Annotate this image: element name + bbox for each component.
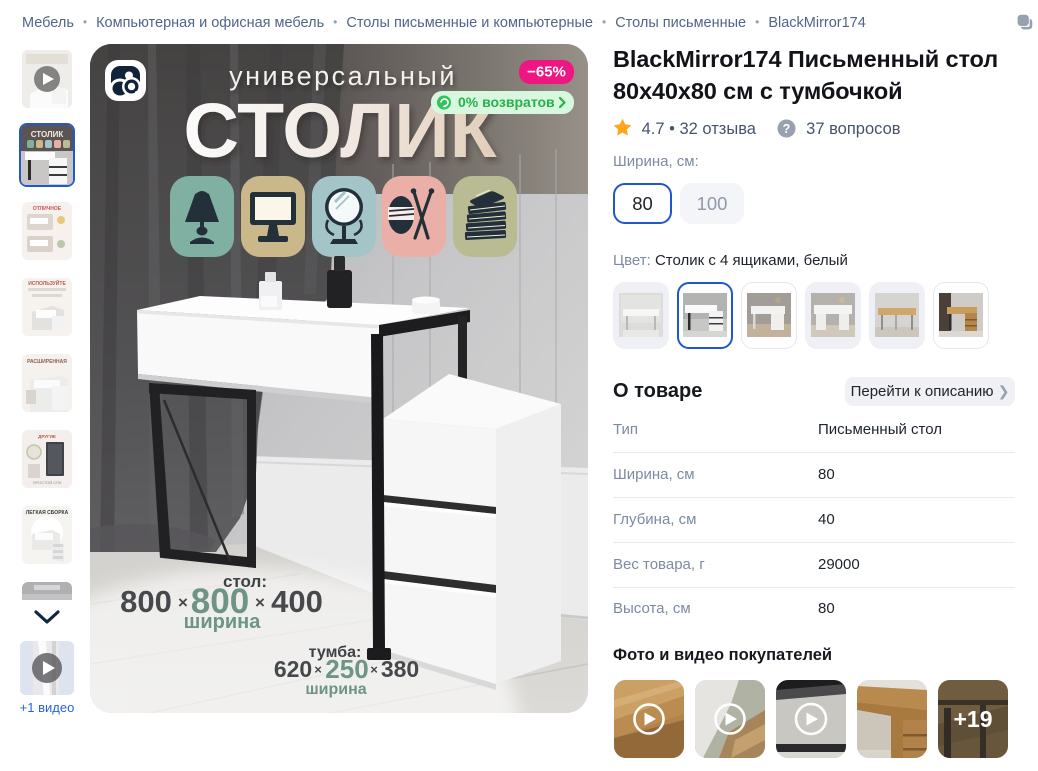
svg-text:универсальный: универсальный: [229, 61, 457, 91]
svg-text:620: 620: [274, 656, 312, 682]
svg-text:400: 400: [271, 584, 323, 619]
svg-text:ОТЛИЧНОЕ: ОТЛИЧНОЕ: [33, 206, 62, 212]
svg-text:РАСШИРЕННАЯ: РАСШИРЕННАЯ: [27, 359, 67, 365]
svg-text:×: ×: [370, 662, 378, 677]
svg-text:250: 250: [325, 654, 368, 684]
svg-text:+19: +19: [953, 706, 992, 732]
svg-text:ЛЕГКАЯ СБОРКА: ЛЕГКАЯ СБОРКА: [26, 510, 69, 516]
svg-text:×: ×: [314, 662, 322, 677]
svg-text:380: 380: [381, 656, 419, 682]
svg-text:×: ×: [255, 593, 265, 612]
svg-text:ширина: ширина: [184, 611, 262, 633]
svg-text:−65%: −65%: [527, 64, 566, 81]
svg-text:ПРОСТОЙ СПб: ПРОСТОЙ СПб: [33, 480, 62, 485]
svg-text:×: ×: [178, 593, 188, 612]
svg-text:?: ?: [782, 122, 790, 136]
svg-text:800: 800: [120, 584, 172, 619]
svg-text:ширина: ширина: [305, 681, 366, 698]
svg-text:0% возвратов: 0% возвратов: [458, 94, 555, 110]
svg-text:ДРУГИЕ: ДРУГИЕ: [38, 434, 56, 439]
svg-text:ИСПОЛЬЗУЙТЕ: ИСПОЛЬЗУЙТЕ: [28, 279, 66, 287]
svg-text:СТОЛИК: СТОЛИК: [31, 130, 64, 139]
